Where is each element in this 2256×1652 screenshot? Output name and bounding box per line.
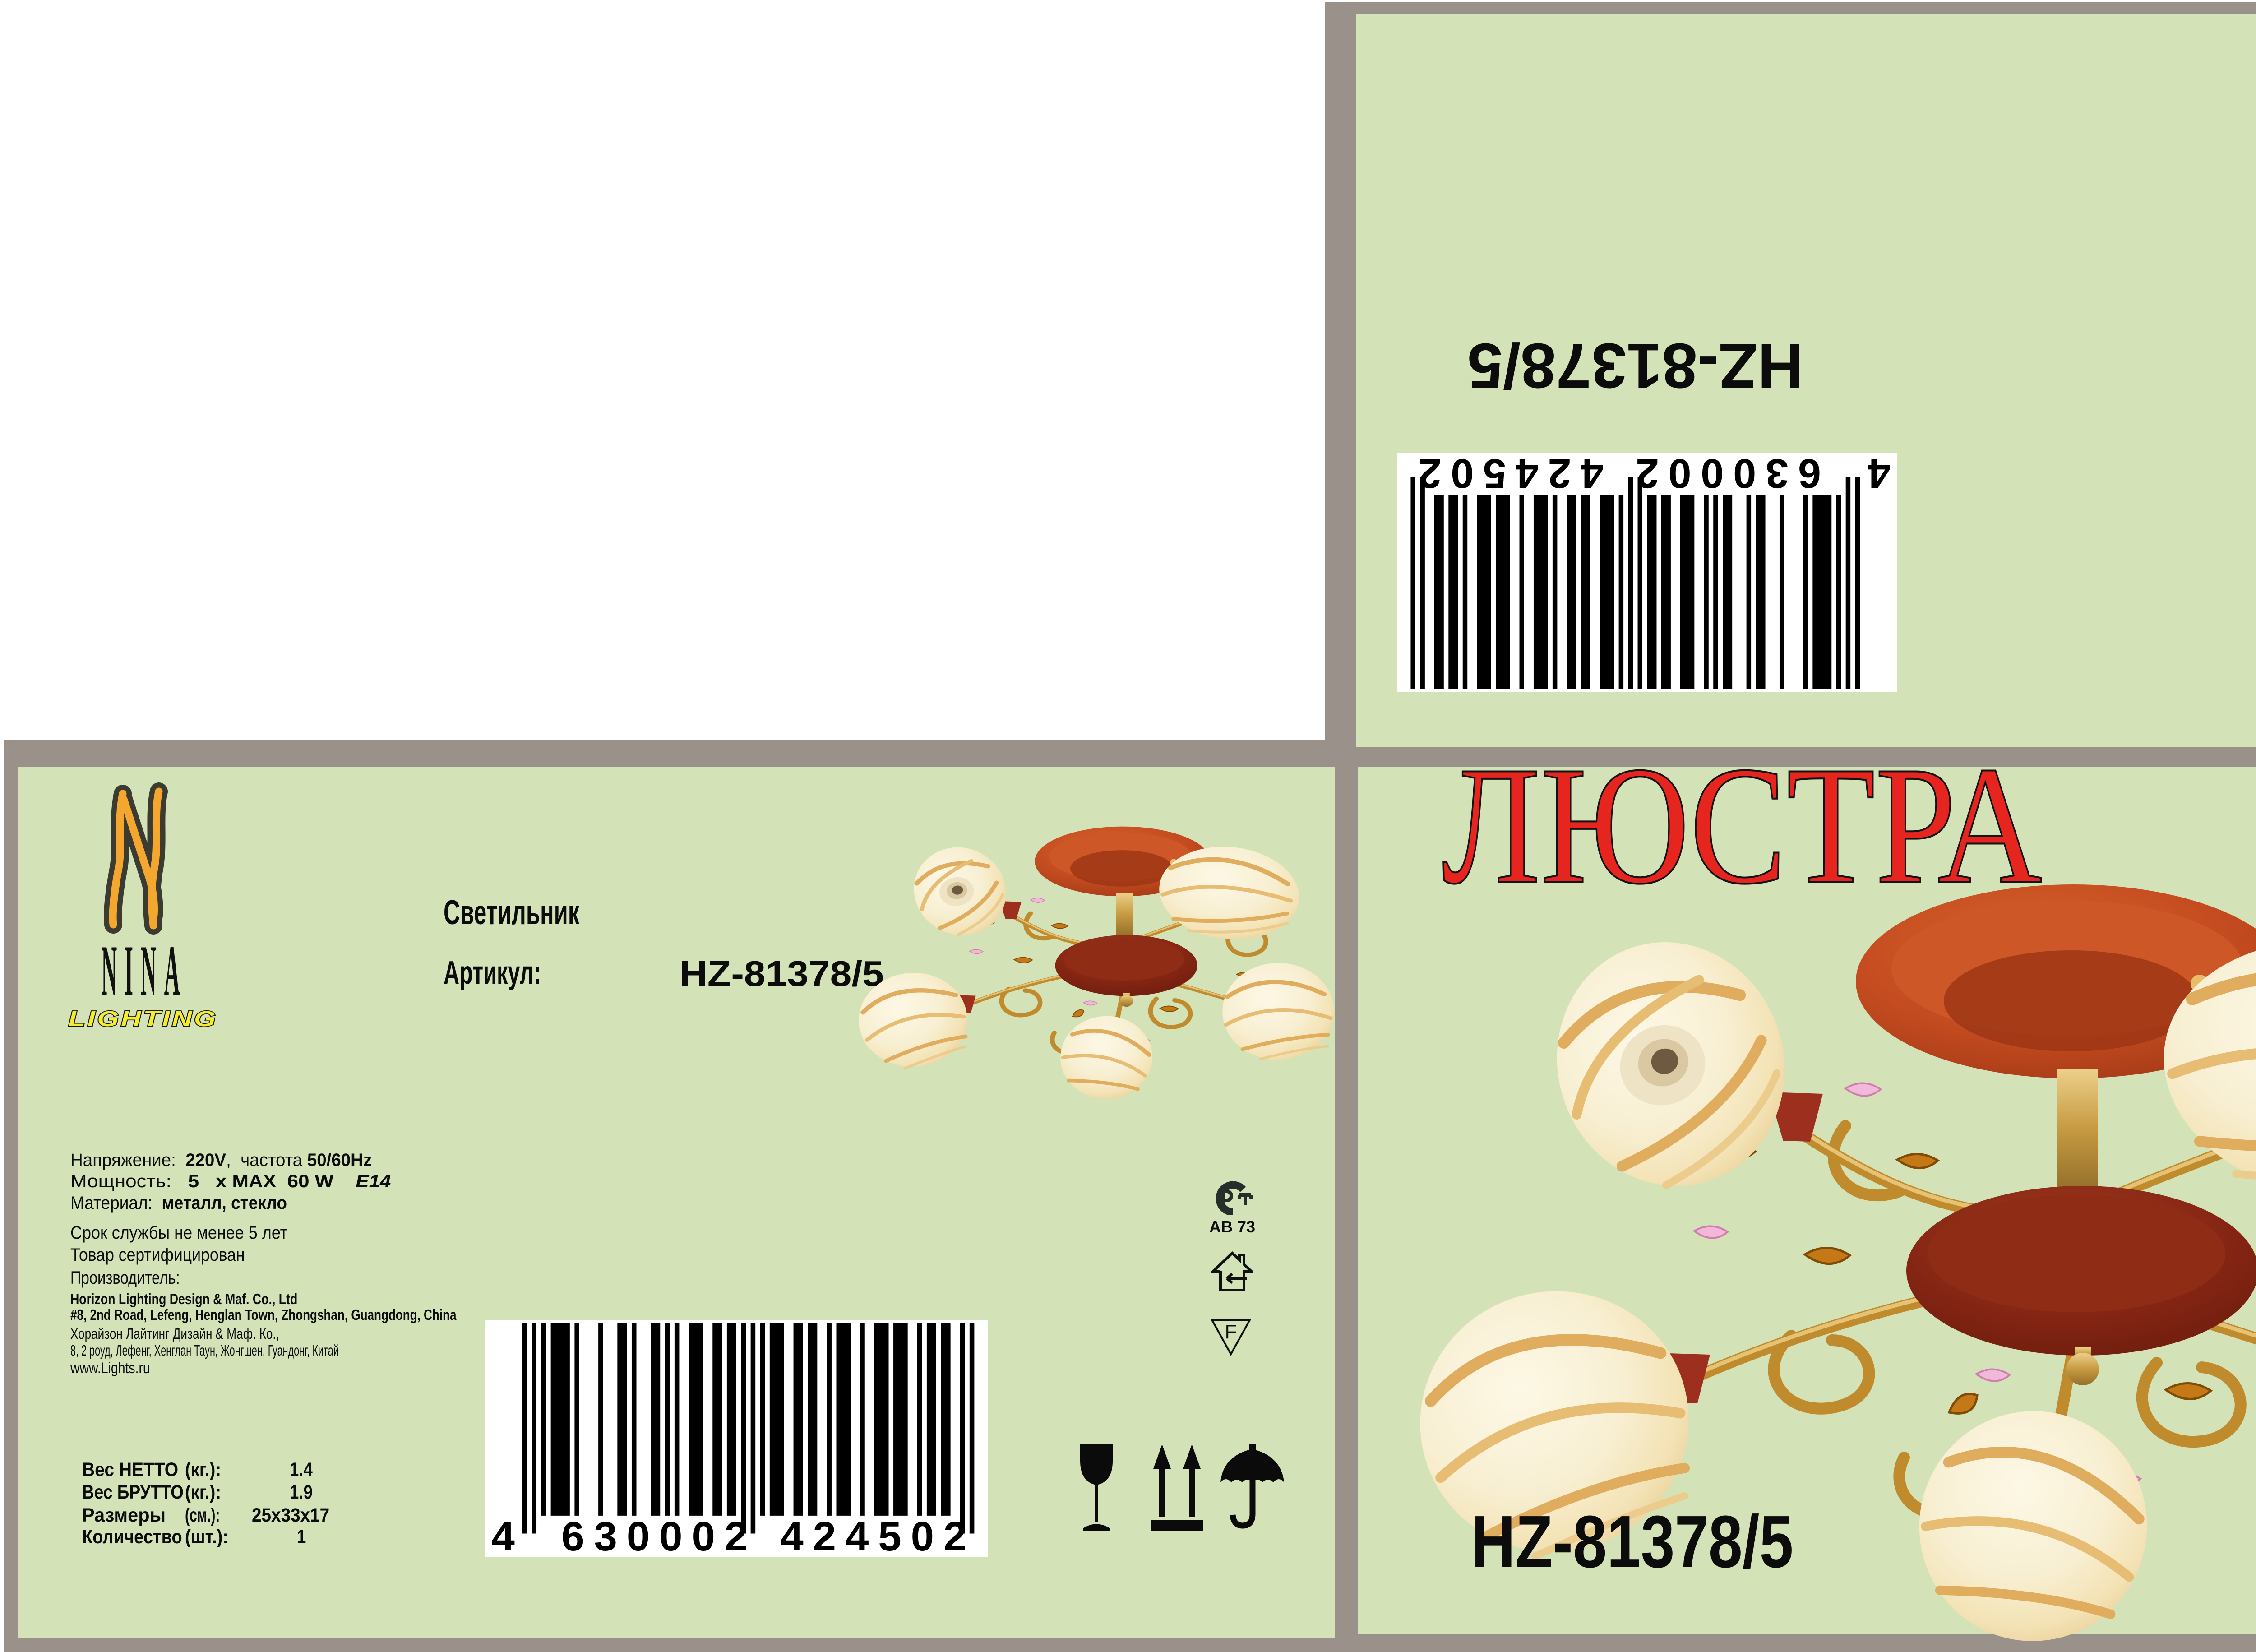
svg-text:0: 0	[1668, 453, 1691, 496]
svg-text:0: 0	[692, 1514, 715, 1557]
svg-text:6: 6	[561, 1514, 584, 1557]
svg-text:0: 0	[1701, 453, 1724, 496]
svg-text:3: 3	[1766, 453, 1789, 496]
svg-text:0: 0	[1451, 453, 1474, 496]
svg-text:5: 5	[878, 1514, 901, 1557]
svg-text:4: 4	[780, 1514, 803, 1557]
svg-text:4: 4	[491, 1514, 514, 1557]
svg-text:4: 4	[1868, 453, 1891, 496]
svg-text:2: 2	[725, 1514, 748, 1557]
svg-text:F: F	[1225, 1321, 1237, 1343]
svg-text:NINA: NINA	[101, 930, 187, 1011]
svg-text:2: 2	[1418, 453, 1441, 496]
svg-text:2: 2	[943, 1514, 966, 1557]
svg-text:5: 5	[1483, 453, 1506, 496]
svg-text:4: 4	[1581, 453, 1604, 496]
svg-text:LIGHTING: LIGHTING	[69, 1007, 218, 1027]
svg-text:4: 4	[1516, 453, 1539, 496]
svg-text:0: 0	[659, 1514, 682, 1557]
svg-text:4: 4	[846, 1514, 869, 1557]
svg-text:2: 2	[1636, 453, 1659, 496]
svg-text:2: 2	[813, 1514, 836, 1557]
svg-text:6: 6	[1798, 453, 1821, 496]
svg-text:0: 0	[1733, 453, 1756, 496]
svg-text:3: 3	[594, 1514, 617, 1557]
svg-text:0: 0	[911, 1514, 934, 1557]
svg-text:0: 0	[627, 1514, 650, 1557]
svg-text:2: 2	[1548, 453, 1571, 496]
